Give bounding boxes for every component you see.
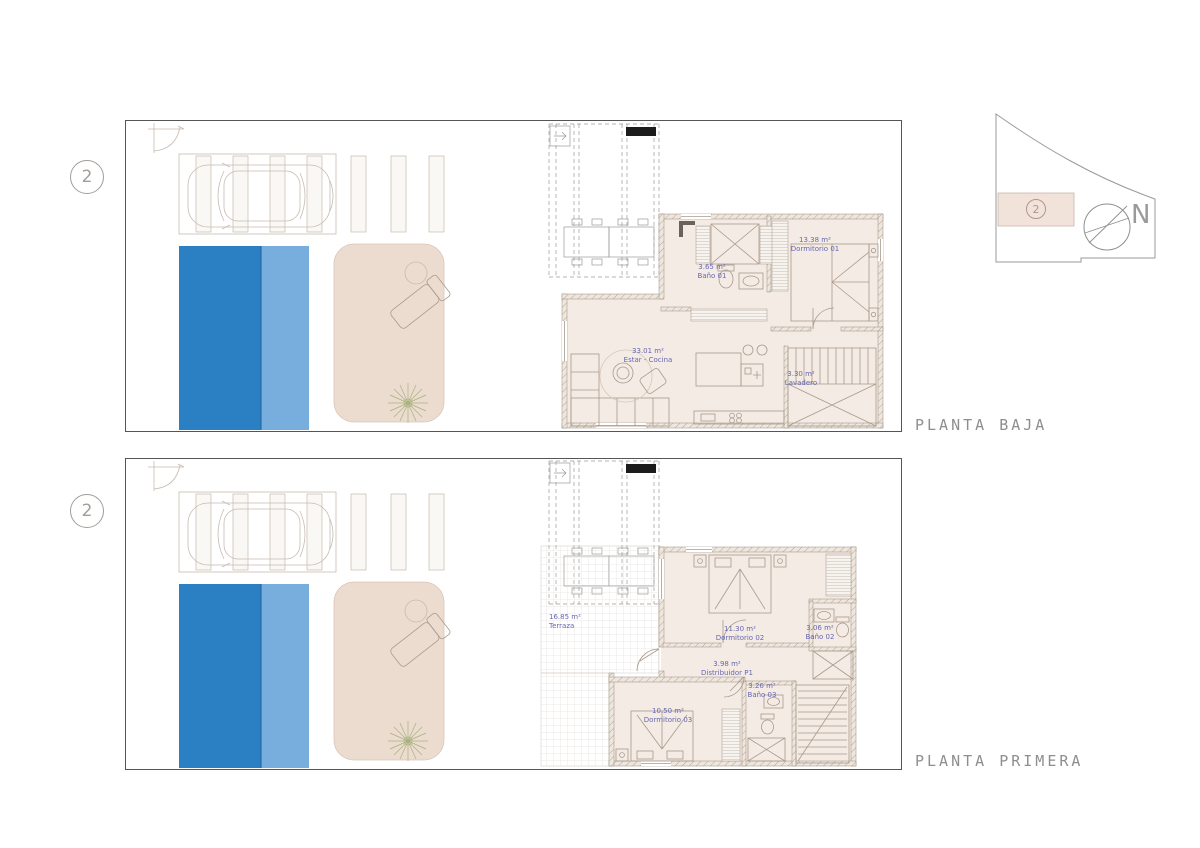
room-label-bano-03: 3.26 m²Baño 03 [748, 682, 777, 700]
room-label-bano-02: 3.06 m²Baño 02 [806, 624, 835, 642]
wardrobe [826, 554, 851, 596]
railing [691, 309, 767, 321]
room-label-dormitorio-03: 10.50 m²Dormitorio 03 [644, 707, 692, 725]
floor-plan-sheet: 2 2 [0, 0, 1200, 848]
exterior-garden [148, 123, 451, 430]
floor-title-primera: PLANTA PRIMERA [915, 752, 1083, 770]
porch-pergola [549, 124, 659, 277]
wardrobe [772, 221, 788, 291]
key-plan-outline [996, 114, 1155, 262]
room-label-estar-cocina: 33.01 m²Estar - Cocina [624, 347, 673, 365]
drawing-tag-chip [626, 127, 656, 136]
room-label-dormitorio-02: 11.30 m²Dormitorio 02 [716, 625, 764, 643]
plan-marker-primera: 2 [70, 494, 104, 528]
planta-primera-drawing [126, 459, 901, 769]
north-arrow-circle [1084, 204, 1130, 250]
plan-marker-baja: 2 [70, 160, 104, 194]
exterior-garden [148, 461, 451, 768]
key-plan-marker: 2 [1033, 203, 1040, 216]
wardrobe [722, 709, 740, 761]
key-plan-compass: 2 N [988, 95, 1163, 267]
planta-primera-plan [125, 458, 902, 770]
room-label-lavadero: 3.30 m²Lavadero [785, 370, 817, 388]
room-label-terraza: 16.85 m²Terraza [549, 613, 581, 631]
north-label: N [1131, 200, 1150, 230]
room-label-bano-01: 3.65 m²Baño 01 [698, 263, 727, 281]
floor-title-baja: PLANTA BAJA [915, 416, 1047, 434]
room-label-dormitorio-01: 13.38 m²Dormitorio 01 [791, 236, 839, 254]
drawing-tag-chip [626, 464, 656, 473]
room-label-distribuidor-p1: 3.98 m²Distribuidor P1 [701, 660, 753, 678]
outdoor-dining-set [564, 219, 654, 265]
